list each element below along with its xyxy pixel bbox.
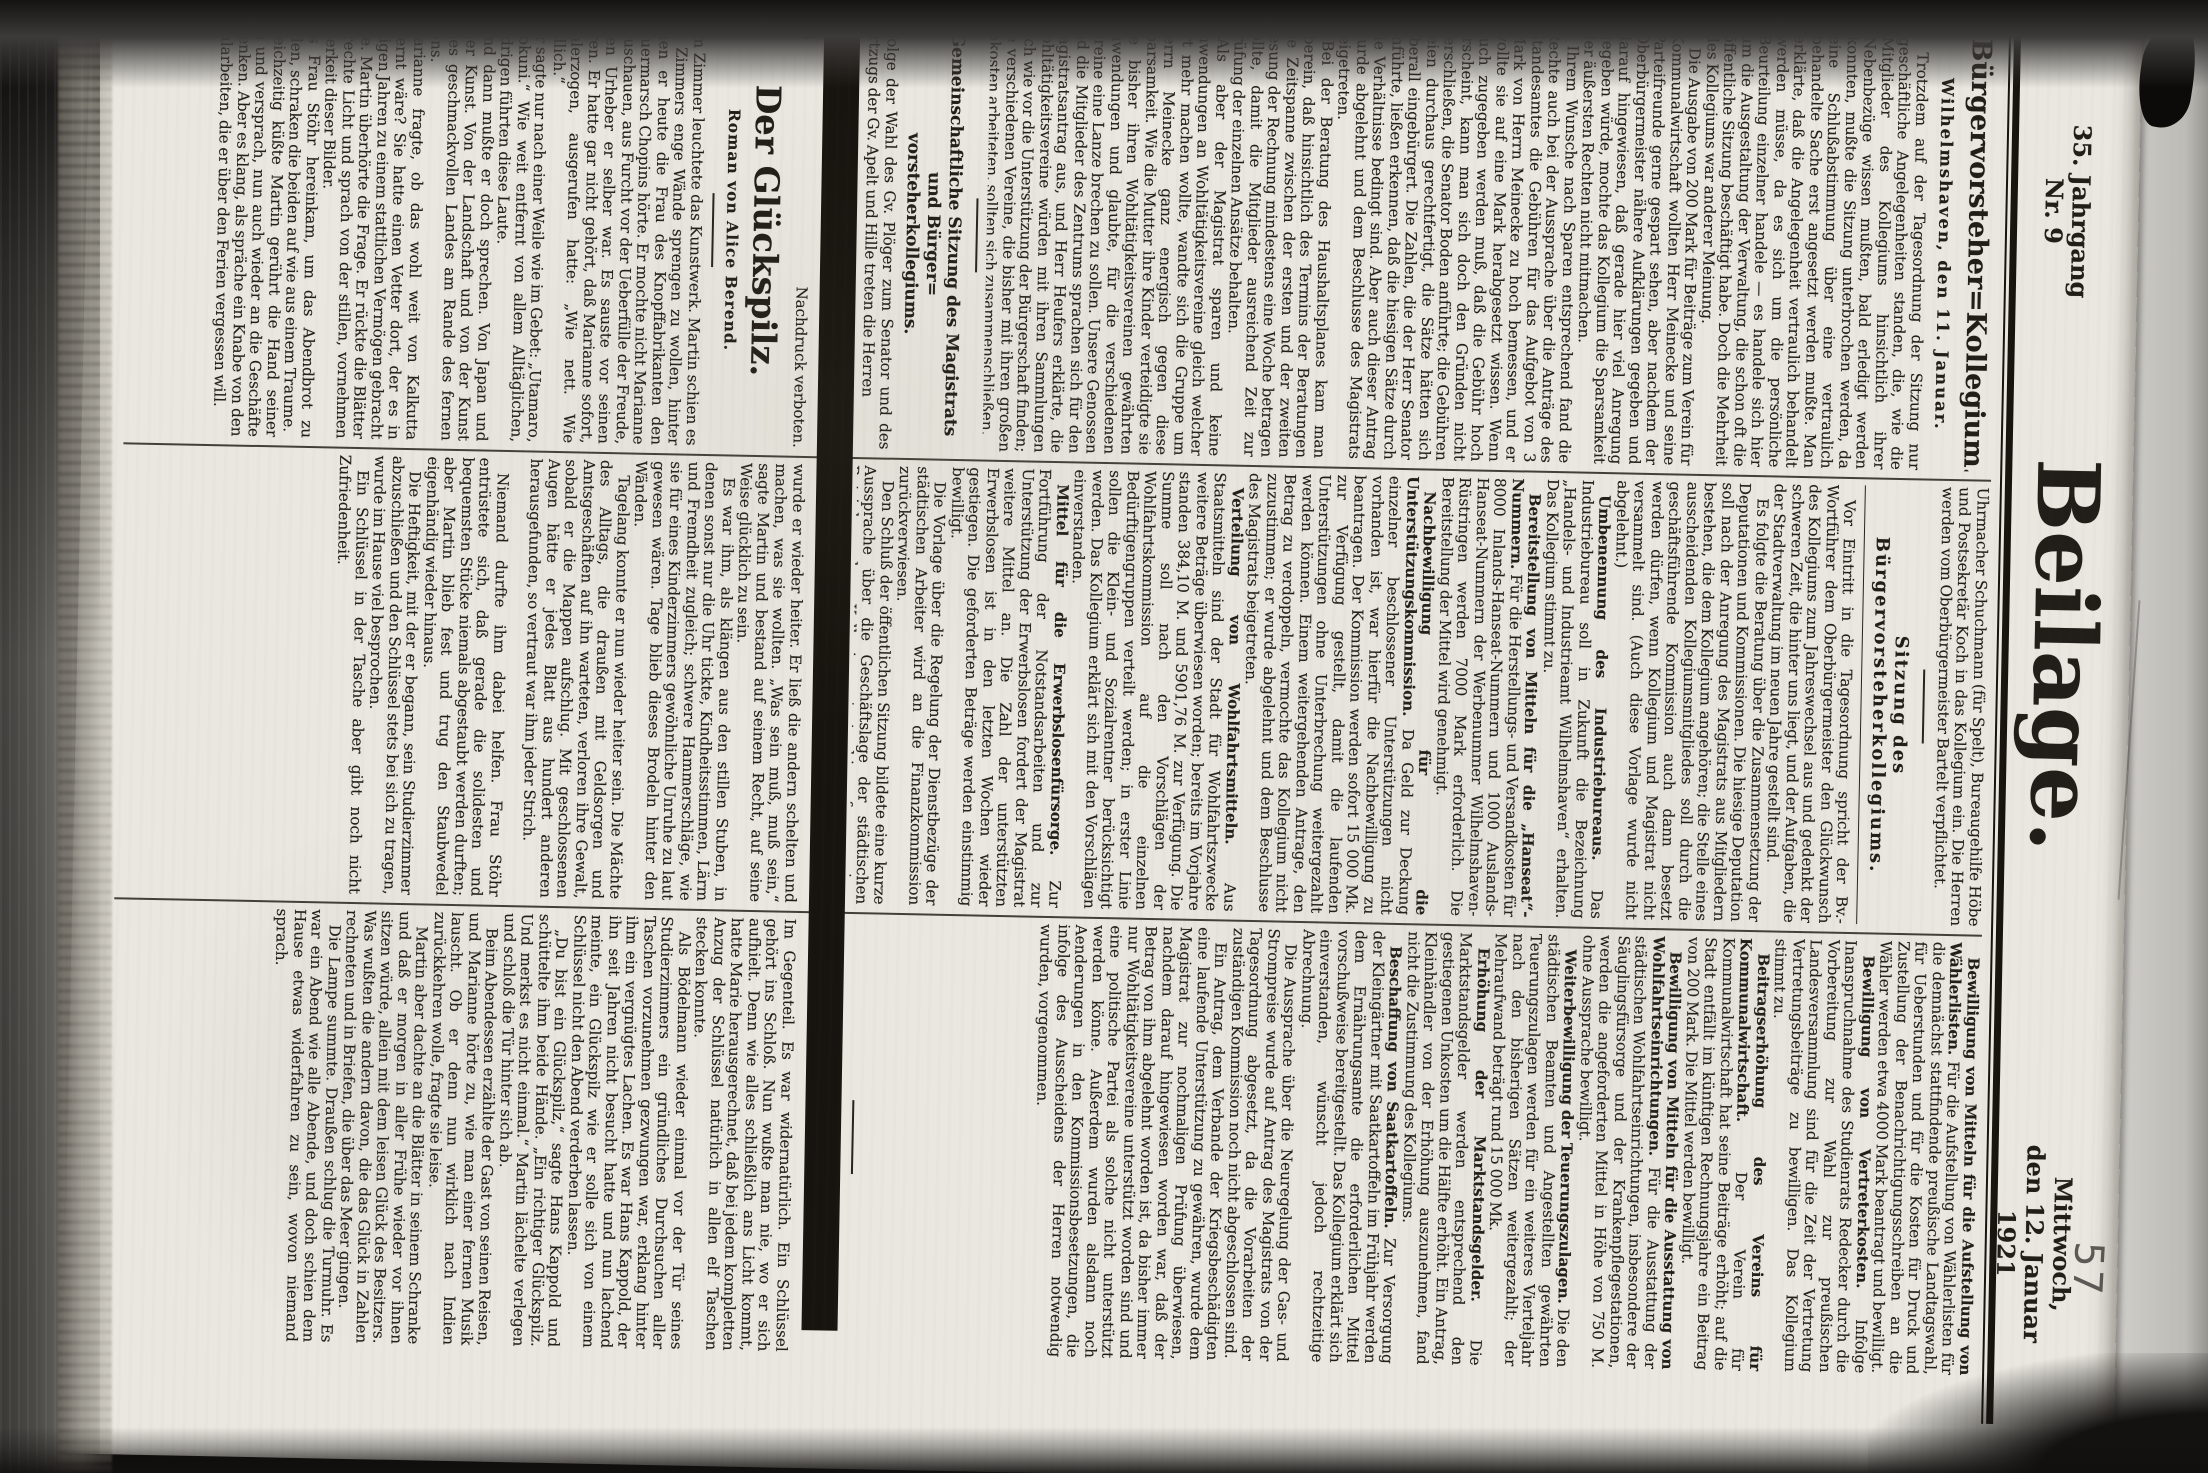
body-paragraph: Es folgte die Beratung über die Zusammen… — [1605, 480, 1771, 922]
installment-number: 14) — [798, 15, 816, 40]
body-paragraph: Martin aber dachte an die Blätter in sei… — [334, 910, 430, 1345]
section-divider — [975, 198, 978, 272]
article-body: Vor Eintritt in die Tagesordnung spricht… — [848, 465, 1858, 924]
feuilleton-column-2: wurde er wieder heiter. Er ließ die ande… — [110, 450, 807, 903]
body-paragraph: Ihrem Wunsche nach Sparen entsprechend f… — [1327, 26, 1581, 464]
joint-session-intro: Infolge der Wahl des Gv. Plöger zum Sena… — [857, 16, 901, 450]
body-paragraph: Als Bödelmann wieder einmal vor der Tür … — [562, 914, 693, 1349]
body-paragraph: Beim Abendessen erzählte der Gast von se… — [422, 912, 501, 1346]
body-paragraph: Bewilligung von Mitteln für die Ausstatt… — [1571, 935, 1685, 1370]
news-column-1: Bürgervorsteher=Kollegium. Wilhelmshaven… — [857, 16, 1999, 472]
news-column-3: Bewilligung von Mitteln für die Aufstell… — [839, 920, 1981, 1376]
body-paragraph: Im Gegenteil. Es war widernatürlich. Ein… — [684, 917, 798, 1352]
body-paragraph: Nachbewilligung für die Unterstützungsko… — [1237, 473, 1438, 916]
body-paragraph: Die Ausgabe von 200 Mark für Beiträge zu… — [1572, 30, 1703, 465]
rotated-content-wrap: 35. Jahrgang Nr. 9 Beilage. Mittwoch, de… — [74, 0, 2119, 1472]
body-paragraph: wurde er wieder heiter. Er ließ die ande… — [728, 463, 807, 903]
novel-text: wurde er wieder heiter. Er ließ die ande… — [110, 450, 807, 903]
feuilleton-column-3: Im Gegenteil. Es war widernatürlich. Ein… — [101, 905, 798, 1352]
section-divider — [1922, 669, 1925, 743]
newspaper-scan-stage: 35. Jahrgang Nr. 9 Beilage. Mittwoch, de… — [0, 0, 2208, 1473]
news-column-2: Uhrmacher Schuchmann (für Spelt), Bureau… — [848, 465, 1991, 927]
joint-session-heading: Gemeinschaftliche Sitzung des Magistrats… — [896, 17, 968, 451]
volume-issue-block: 35. Jahrgang Nr. 9 — [2038, 111, 2096, 312]
body-paragraph: Den Schluß der öffentlichen Sitzung bild… — [848, 465, 896, 905]
body-paragraph: Vor Eintritt in die Tagesordnung spricht… — [1762, 483, 1858, 924]
article-end-divider — [851, 1100, 854, 1174]
masthead-title: Beilage. — [2008, 292, 2119, 1018]
body-paragraph: Mittel für die Erwerbslosenfürsorge. Zur… — [940, 467, 1071, 908]
novel-text: Im Zimmer leuchtete das Kunstwerk. Marti… — [120, 1, 709, 446]
article-headline: Bürgervorsteher=Kollegium. — [1955, 38, 1998, 472]
article-body: Trotzdem auf der Tagesordnung der Sitzun… — [982, 19, 1931, 471]
body-paragraph: Tagelang konnte er nun wieder heiter sei… — [518, 458, 632, 899]
body-paragraph: Bewilligung von Mitteln für die Aufstell… — [1868, 941, 1982, 1376]
body-paragraph: Die Vorlage über die Regelung der Dienst… — [887, 466, 948, 906]
body-paragraph: Es war ihm, als klängen aus den stillen … — [623, 461, 737, 902]
body-paragraph: Niemand durfte ihm dabei helfen. Frau St… — [415, 456, 511, 897]
reprint-notice: Nachdruck verboten. — [789, 286, 810, 448]
news-section: Bürgervorsteher=Kollegium. Wilhelmshaven… — [839, 16, 2000, 1375]
body-paragraph: Er sagte nur nach einer Weile wie im Geb… — [490, 9, 551, 443]
body-paragraph: Gleichzeitig küßte Martin gerührt die Ha… — [210, 3, 289, 437]
body-paragraph: Und dann mußte er doch sprechen. Von Jap… — [420, 7, 499, 441]
article-dateline: Wilhelmshaven, den 11. Januar. — [1930, 38, 1958, 471]
page-edge-stack — [58, 0, 112, 1473]
body-paragraph: Ein Schlüssel in der Tasche aber gibt no… — [327, 455, 371, 895]
body-paragraph: Bereitstellung von Mitteln für die „Hans… — [1430, 477, 1544, 918]
body-paragraph: Bewilligung von Vertreterkosten. Infolge… — [1763, 938, 1877, 1373]
body-paragraph: Trotzdem auf der Tagesordnung der Sitzun… — [1695, 33, 1931, 470]
feuilleton-meta-line: 14) Nachdruck verboten. — [789, 15, 816, 448]
body-paragraph: Verteilung von Wohlfahrtsmitteln. Aus St… — [1062, 469, 1246, 911]
page-content: 35. Jahrgang Nr. 9 Beilage. Mittwoch, de… — [74, 0, 2119, 1472]
body-paragraph: Die Lampe summte. Draußen schlug die Tur… — [264, 908, 343, 1342]
byline-divider — [711, 193, 714, 267]
body-paragraph: Beschaffung von Saatkartoffeln. Zur Vers… — [1291, 929, 1405, 1364]
feuilleton-section: 14) Nachdruck verboten. Der Glückspilz. … — [101, 1, 816, 1352]
novel-text: Im Gegenteil. Es war widernatürlich. Ein… — [101, 905, 798, 1352]
body-paragraph: Beitragserhöhung des Vereins für Kommuna… — [1676, 937, 1772, 1372]
session-subheading: Sitzung des Bürgervorsteherkollegiums. — [1865, 485, 1916, 925]
body-paragraph: Marianne fragte, ob das wohl weit von Ka… — [315, 5, 429, 440]
body-paragraph: Ein Antrag, dem Verbande der Kriegsbesch… — [1028, 924, 1229, 1361]
body-paragraph: Die Aussprache über die Neuregelung der … — [1221, 928, 1300, 1362]
continuation-paragraph: Uhrmacher Schuchmann (für Spelt), Bureau… — [1930, 487, 1991, 927]
body-paragraph: Im Zimmer leuchtete das Kunstwerk. Marti… — [542, 10, 708, 446]
body-paragraph: Umbenennung des Industriebureaus. Das In… — [1535, 479, 1614, 919]
body-paragraph: Weiterbewilligung der Teuerungszulagen. … — [1483, 933, 1579, 1368]
body-paragraph: Die Heftigkeit, mit der er begann, sein … — [362, 455, 423, 895]
newspaper-page: 35. Jahrgang Nr. 9 Beilage. Mittwoch, de… — [61, 0, 2143, 1473]
body-paragraph: Als aber der Magistrat sparen und keine … — [982, 19, 1231, 457]
body-paragraph: Erhöhung der Marktstandsgelder. Die Mark… — [1396, 931, 1492, 1366]
page-number-handwritten: 57 — [2063, 1240, 2112, 1297]
article-body: Bewilligung von Mitteln für die Aufstell… — [858, 920, 1981, 1375]
feuilleton-column-1: 14) Nachdruck verboten. Der Glückspilz. … — [120, 1, 817, 448]
body-paragraph: „Du bist ein Glückspilz,“ sagte Hans Kap… — [492, 913, 571, 1347]
body-paragraph: Bei der Beratung des Haushaltsplanes kam… — [1222, 23, 1336, 458]
novel-title: Der Glückspilz. — [739, 14, 790, 448]
volume-line: 35. Jahrgang — [2065, 111, 2096, 312]
